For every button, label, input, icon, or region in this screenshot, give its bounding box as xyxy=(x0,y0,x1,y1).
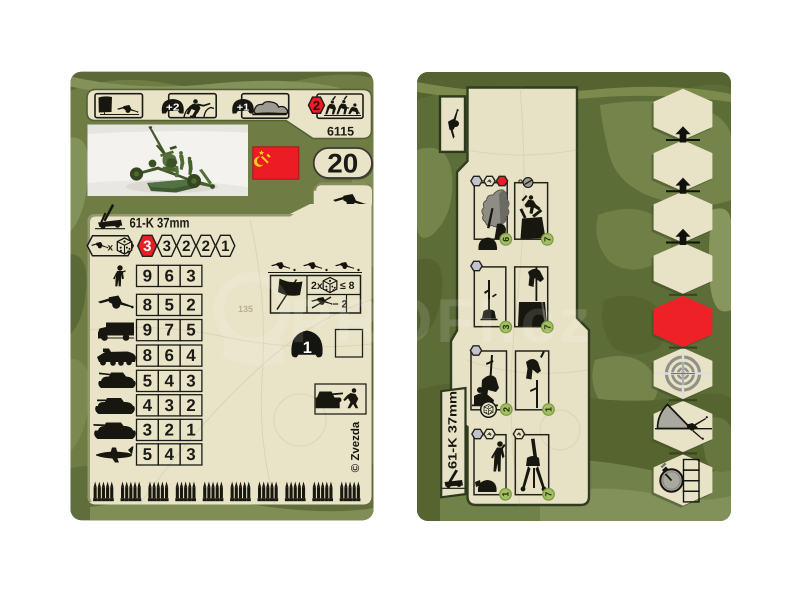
svg-text:3: 3 xyxy=(186,445,195,464)
svg-text:9: 9 xyxy=(143,321,152,340)
svg-text:© Zvezda: © Zvezda xyxy=(350,421,362,472)
svg-text:8: 8 xyxy=(143,346,152,365)
svg-text:3: 3 xyxy=(143,421,152,440)
svg-text:4: 4 xyxy=(164,372,174,391)
svg-text:5: 5 xyxy=(164,296,173,315)
svg-text:1: 1 xyxy=(221,238,229,255)
svg-text:7: 7 xyxy=(542,237,552,242)
svg-text:2: 2 xyxy=(313,98,320,113)
svg-text:5: 5 xyxy=(143,372,152,391)
svg-text:1: 1 xyxy=(544,407,554,412)
svg-text:4: 4 xyxy=(143,396,153,415)
svg-text:6115: 6115 xyxy=(327,124,354,138)
svg-text:3: 3 xyxy=(163,238,171,255)
svg-text:2: 2 xyxy=(182,238,190,255)
svg-text:2: 2 xyxy=(186,396,195,415)
svg-text:1: 1 xyxy=(501,492,511,497)
svg-text:PROFI.cz: PROFI.cz xyxy=(290,287,594,356)
svg-text:3: 3 xyxy=(186,372,195,391)
svg-text:x: x xyxy=(108,243,114,254)
svg-text:3: 3 xyxy=(164,396,173,415)
svg-text:2: 2 xyxy=(501,407,511,412)
svg-text:9: 9 xyxy=(143,267,152,286)
svg-text:4: 4 xyxy=(186,346,196,365)
svg-text:7: 7 xyxy=(164,321,173,340)
svg-text:2: 2 xyxy=(186,296,195,315)
svg-text:5: 5 xyxy=(143,445,152,464)
svg-text:4: 4 xyxy=(164,445,174,464)
svg-text:8: 8 xyxy=(143,296,152,315)
svg-text:61-K 37mm: 61-K 37mm xyxy=(446,391,460,469)
svg-text:135: 135 xyxy=(238,304,253,314)
svg-text:6: 6 xyxy=(164,346,173,365)
svg-text:3: 3 xyxy=(143,238,151,255)
svg-text:2: 2 xyxy=(164,421,173,440)
svg-text:1: 1 xyxy=(186,421,195,440)
svg-text:+2: +2 xyxy=(166,103,180,114)
svg-text:3: 3 xyxy=(186,267,195,286)
svg-text:6: 6 xyxy=(501,237,511,242)
svg-text:5: 5 xyxy=(186,321,195,340)
svg-text:20: 20 xyxy=(327,149,358,179)
svg-text:2: 2 xyxy=(202,238,210,255)
svg-text:+1: +1 xyxy=(237,103,250,114)
svg-text:7: 7 xyxy=(544,492,554,497)
svg-text:61-K 37mm: 61-K 37mm xyxy=(130,215,190,231)
svg-text:6: 6 xyxy=(164,267,173,286)
